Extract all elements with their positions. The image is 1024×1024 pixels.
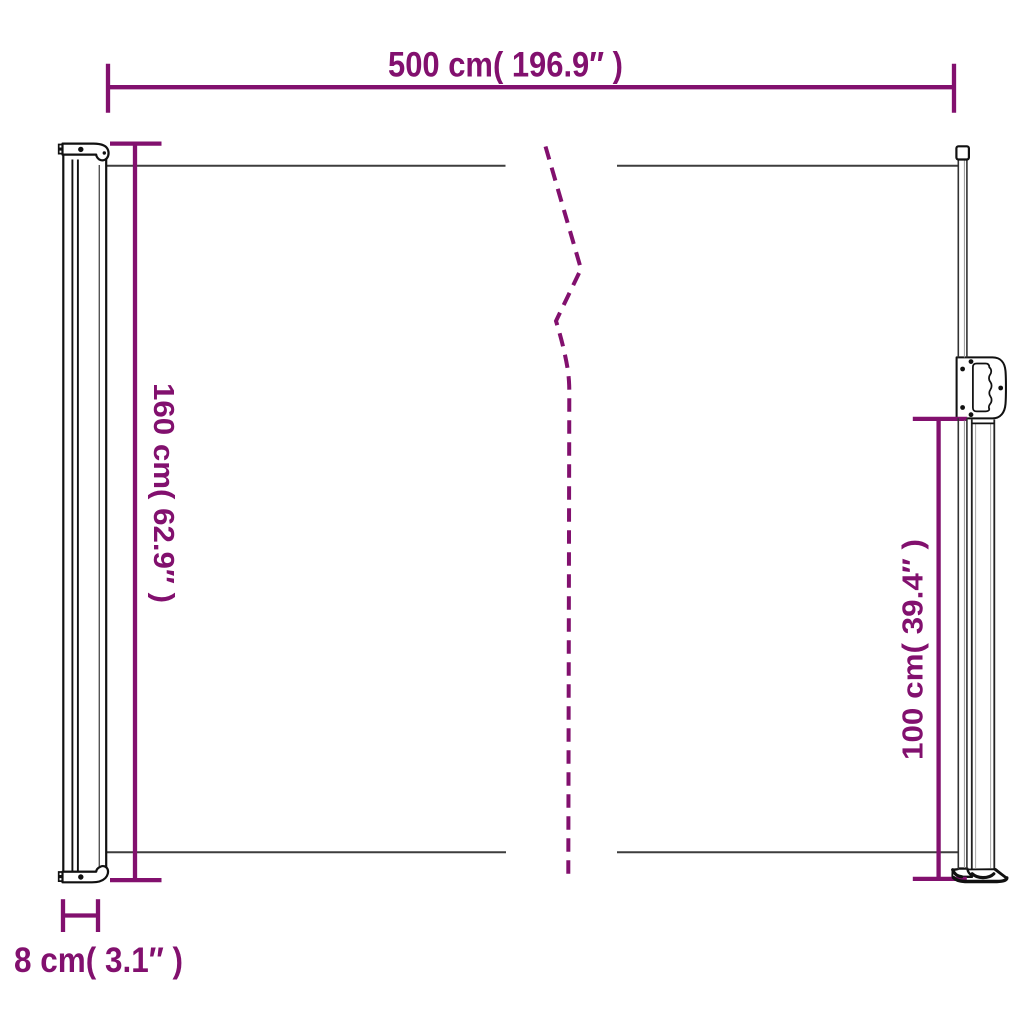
svg-text:100 cm( 39.4″ ): 100 cm( 39.4″ ) [898, 539, 930, 760]
svg-text:500 cm( 196.9″ ): 500 cm( 196.9″ ) [388, 45, 623, 85]
svg-text:8 cm( 3.1″ ): 8 cm( 3.1″ ) [14, 941, 183, 980]
svg-text:160 cm( 62.9″ ): 160 cm( 62.9″ ) [147, 383, 179, 603]
